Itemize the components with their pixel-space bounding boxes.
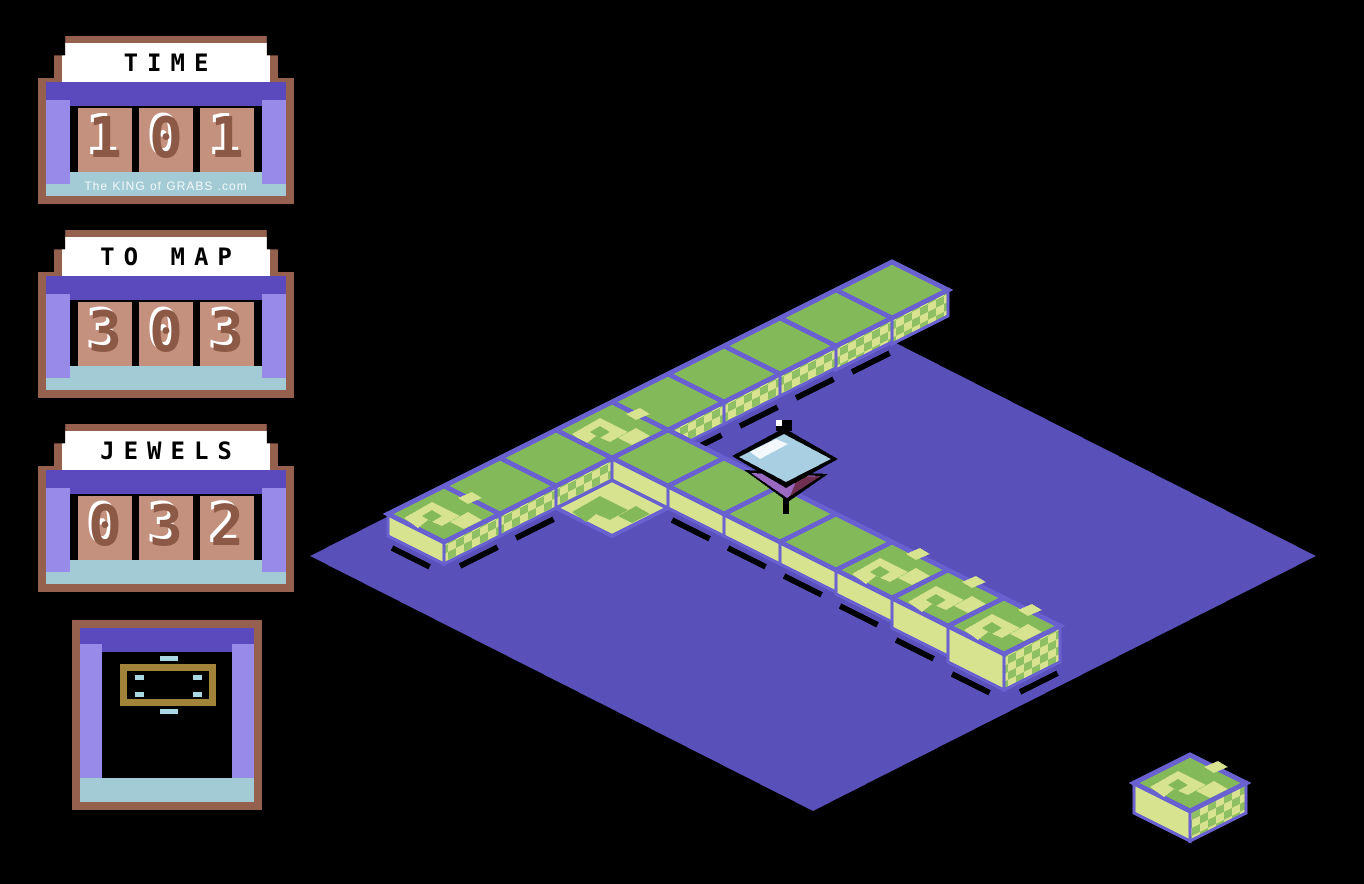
counter-top-band (46, 82, 286, 106)
counter-ledge (46, 560, 286, 584)
digit-card: 1 (78, 108, 132, 172)
counter-banner: TIME (54, 36, 278, 82)
counter-box-to-map: TO MAP 3 0 3 (38, 230, 294, 398)
counter-right-pillar (262, 294, 286, 378)
counter-title-to-map: TO MAP (91, 243, 241, 271)
minimap-dash-top (160, 656, 178, 661)
minimap-corner-mark (193, 675, 202, 680)
counter-left-pillar (46, 294, 70, 378)
minimap-corner-mark (135, 675, 144, 680)
digit-card: 0 (139, 302, 193, 366)
counter-banner-plate: TIME (62, 43, 270, 82)
counter-right-pillar (262, 488, 286, 572)
minimap-left-pillar (80, 644, 102, 780)
digit-card: 1 (200, 108, 254, 172)
minimap-top-band (80, 628, 254, 652)
digit-card: 3 (200, 302, 254, 366)
counter-top-band (46, 470, 286, 494)
counter-top-band (46, 276, 286, 300)
counter-left-pillar (46, 100, 70, 184)
counter-box-jewels: JEWELS 0 3 2 (38, 424, 294, 592)
minimap-right-pillar (232, 644, 254, 780)
counter-banner-plate: TO MAP (62, 237, 270, 276)
counter-body: 3 0 3 (38, 272, 294, 398)
digit-card: 3 (139, 496, 193, 560)
minimap-ledge (80, 778, 254, 802)
minimap-corner-mark (135, 692, 144, 697)
counter-title-jewels: JEWELS (91, 437, 241, 465)
counter-body: 1 0 1 The KING of GRABS .com (38, 78, 294, 204)
counter-digits-time: 1 0 1 (70, 108, 262, 172)
minimap-dash-bottom (160, 709, 178, 714)
counter-digits-jewels: 0 3 2 (70, 496, 262, 560)
minimap-frame (120, 664, 216, 706)
counter-banner-plate: JEWELS (62, 431, 270, 470)
digit-card: 0 (139, 108, 193, 172)
player-nub-glint (776, 420, 782, 426)
minimap-corner-mark (193, 692, 202, 697)
digit-card: 2 (200, 496, 254, 560)
counter-box-time: TIME 1 0 1 The KING of GRABS .com (38, 36, 294, 204)
counter-ledge (46, 366, 286, 390)
watermark-text: The KING of GRABS .com (46, 179, 286, 193)
counter-left-pillar (46, 488, 70, 572)
digit-card: 0 (78, 496, 132, 560)
counter-body: 0 3 2 (38, 466, 294, 592)
counter-banner: TO MAP (54, 230, 278, 276)
minimap-box (72, 620, 262, 810)
counter-digits-to-map: 3 0 3 (70, 302, 262, 366)
counter-banner: JEWELS (54, 424, 278, 470)
digit-card: 3 (78, 302, 132, 366)
game-screen: TIME 1 0 1 The KING of GRABS .com TO MAP (0, 0, 1364, 884)
counter-right-pillar (262, 100, 286, 184)
counter-title-time: TIME (115, 49, 218, 77)
